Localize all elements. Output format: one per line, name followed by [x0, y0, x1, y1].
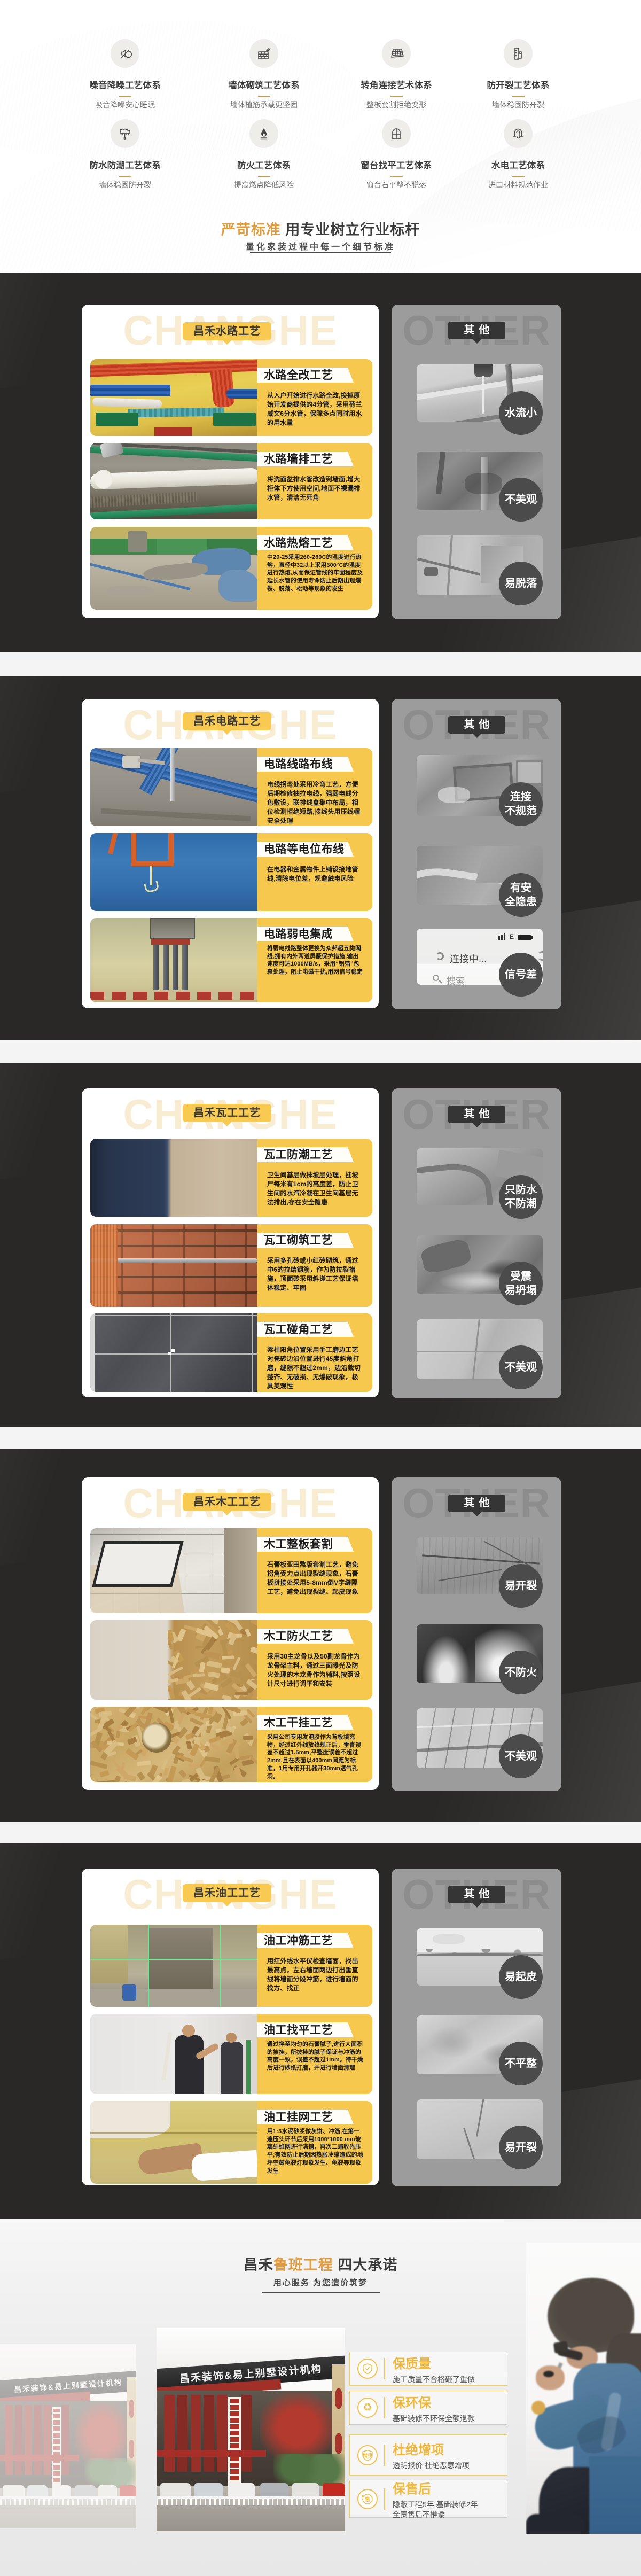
svg-text:增项: 增项 [363, 2452, 372, 2458]
svg-text:售: 售 [365, 2496, 370, 2503]
